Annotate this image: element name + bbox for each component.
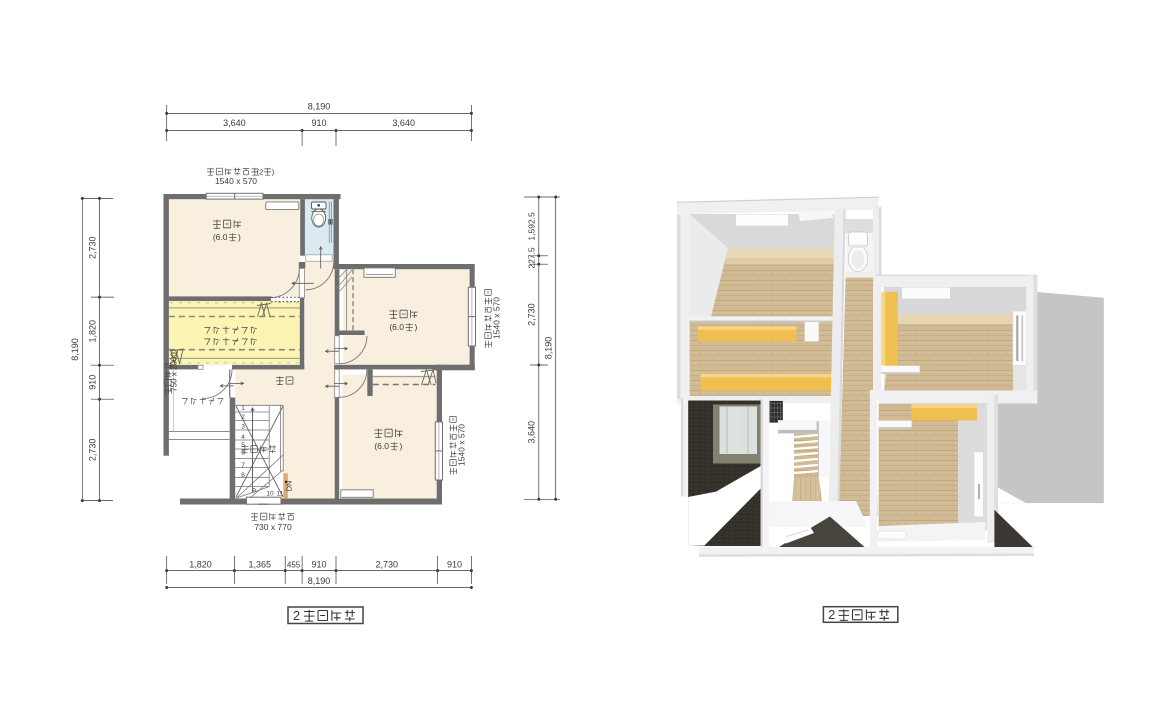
svg-text:3: 3 [241, 424, 245, 431]
svg-text:): ) [400, 441, 403, 451]
svg-text:(6.0: (6.0 [374, 441, 389, 451]
svg-text:11: 11 [277, 491, 284, 498]
svg-text:910: 910 [447, 560, 462, 570]
svg-text:1,820: 1,820 [189, 560, 212, 570]
svg-text:): ) [238, 232, 241, 242]
svg-text:1,820: 1,820 [87, 320, 97, 343]
svg-text:2: 2 [828, 607, 835, 622]
svg-text:3,640: 3,640 [527, 421, 537, 444]
svg-text:2: 2 [241, 414, 245, 421]
svg-text:8: 8 [241, 472, 245, 479]
svg-text:(6.0: (6.0 [389, 322, 404, 332]
svg-text:1,592.5: 1,592.5 [527, 212, 537, 241]
svg-text:2,730: 2,730 [527, 303, 537, 326]
svg-text:750 x 2000: 750 x 2000 [170, 352, 179, 392]
svg-text:910: 910 [311, 560, 326, 570]
svg-text:8,190: 8,190 [70, 338, 80, 361]
svg-text:10: 10 [266, 491, 274, 498]
svg-text:8,190: 8,190 [544, 337, 554, 360]
svg-text:DN: DN [285, 481, 294, 492]
svg-text:730 x 770: 730 x 770 [254, 522, 292, 532]
svg-text:(2: (2 [257, 168, 264, 177]
svg-text:2,730: 2,730 [87, 236, 97, 259]
svg-text:4: 4 [241, 434, 245, 441]
svg-text:1,365: 1,365 [249, 560, 272, 570]
svg-text:455: 455 [287, 561, 301, 570]
svg-text:2: 2 [293, 608, 300, 623]
svg-text:1540 x 570: 1540 x 570 [492, 297, 502, 339]
svg-text:1540 x 570: 1540 x 570 [215, 176, 257, 186]
svg-text:2,730: 2,730 [376, 560, 399, 570]
svg-text:910: 910 [311, 118, 326, 128]
svg-text:1540 x 570: 1540 x 570 [457, 424, 467, 466]
svg-text:9: 9 [252, 488, 256, 495]
svg-text:910: 910 [87, 375, 97, 390]
svg-text:7: 7 [241, 462, 245, 469]
svg-text:227.5: 227.5 [527, 247, 537, 269]
svg-text:(6.0: (6.0 [213, 232, 228, 242]
svg-text:2,730: 2,730 [87, 439, 97, 462]
svg-text:8,190: 8,190 [308, 101, 331, 111]
svg-text:): ) [415, 322, 418, 332]
svg-text:3,640: 3,640 [392, 118, 415, 128]
svg-text:1: 1 [241, 405, 245, 412]
svg-text:3,640: 3,640 [223, 118, 246, 128]
svg-text:8,190: 8,190 [308, 576, 331, 586]
